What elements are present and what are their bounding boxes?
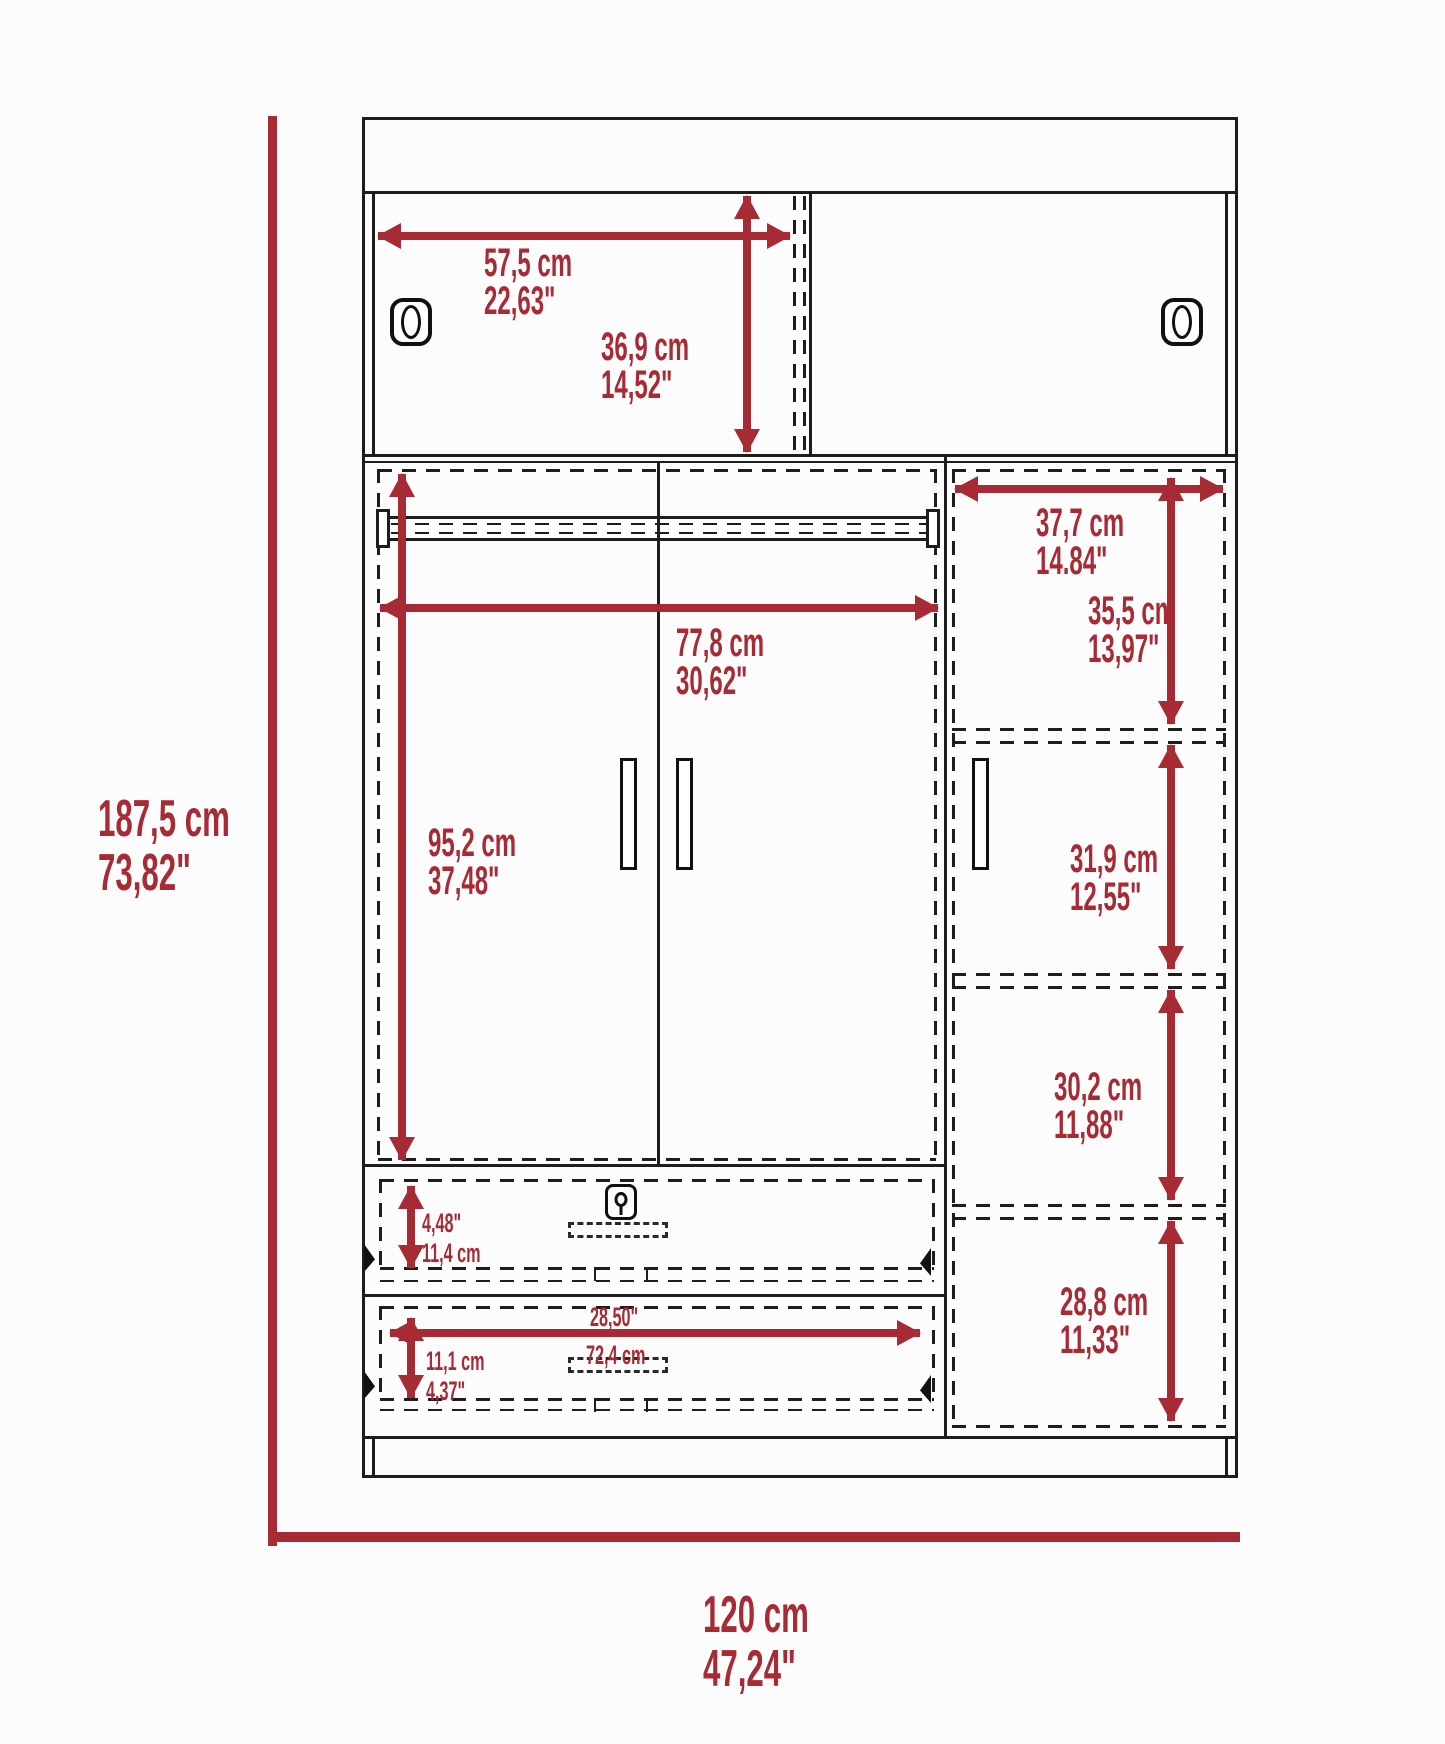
right-column-dashed-bottom <box>952 1425 1226 1428</box>
drawer2-width-arrow <box>390 1329 920 1337</box>
knob-ring <box>1172 305 1192 339</box>
shelf-2-line-a <box>952 973 1226 976</box>
drawer1-height-arrow <box>407 1186 415 1268</box>
overall-height-label: 187,5 cm 73,82" <box>98 792 230 900</box>
drawer2-width-in-label: 28,50" <box>590 1302 638 1332</box>
top-door-width-label: 57,5 cm 22,63" <box>484 244 572 320</box>
top-section-bottom-line-1 <box>362 454 1238 457</box>
overall-height-extension-line <box>268 116 277 1546</box>
wardrobe-width-cm: 77,8 cm <box>676 624 764 662</box>
top-section-inner-right-wall <box>1225 194 1228 457</box>
shelf3-in: 11,88" <box>1054 1106 1142 1144</box>
wardrobe-height-arrow <box>398 474 406 1160</box>
drawer1-dashed-top <box>380 1179 934 1182</box>
knob-ring <box>401 305 421 339</box>
overall-width-label: 120 cm 47,24" <box>703 1588 809 1696</box>
overall-width-cm: 120 cm <box>703 1588 809 1642</box>
shelf3-cm: 30,2 cm <box>1054 1068 1142 1106</box>
sliding-door-edge <box>809 194 812 457</box>
shelf4-in: 11,33" <box>1060 1321 1148 1359</box>
drawer2-dashed-top <box>380 1306 934 1309</box>
drawer2-height-in: 4,37" <box>426 1376 485 1406</box>
drawer1-hidden-handle <box>568 1222 668 1238</box>
shelf2-cm: 31,9 cm <box>1070 840 1158 878</box>
top-door-width-arrow <box>378 232 790 240</box>
armoire-dimension-diagram: 57,5 cm 22,63" 36,9 cm 14,52" 77,8 cm 30… <box>0 0 1445 1744</box>
hanging-rod-right-bracket <box>926 509 940 548</box>
drawer1-height-label: 4,48" 11,4 cm <box>422 1208 481 1268</box>
right-column-dashed-top <box>952 469 1226 472</box>
plinth-inner-left <box>372 1439 375 1475</box>
shelf2-height-arrow <box>1167 745 1175 969</box>
keyhole-stem <box>620 1206 623 1215</box>
right-column-width-in: 14.84" <box>1036 542 1124 580</box>
right-column-dashed-right <box>1223 469 1226 1427</box>
left-door-handle <box>620 758 637 870</box>
top-door-height-in: 14,52" <box>601 366 689 404</box>
shelf1-height-label: 35,5 cm 13,97" <box>1088 592 1176 668</box>
right-column-divider <box>944 456 947 1439</box>
wardrobe-height-cm: 95,2 cm <box>428 824 516 862</box>
plinth-inner-right <box>1225 1439 1228 1475</box>
hanging-rod-left-bracket <box>376 509 390 548</box>
shelf1-in: 13,97" <box>1088 630 1176 668</box>
drawer2-rail-dashed <box>380 1409 934 1411</box>
wardrobe-height-label: 95,2 cm 37,48" <box>428 824 516 900</box>
shelf-3-line-b <box>952 1217 1226 1220</box>
drawer2-rail-tick-left <box>594 1398 596 1412</box>
shelf4-cm: 28,8 cm <box>1060 1283 1148 1321</box>
drawer2-width-cm-label: 72,4 cm <box>586 1340 645 1370</box>
drawer2-height-arrow <box>407 1318 415 1398</box>
wardrobe-width-in: 30,62" <box>676 662 764 700</box>
shelf-1-line-a <box>952 728 1226 731</box>
doors-bottom-line <box>362 1164 947 1167</box>
drawer-divider-line <box>362 1294 947 1297</box>
sliding-door-hidden-edge-2 <box>803 196 806 454</box>
drawer1-dashed-right <box>932 1179 935 1270</box>
shelf2-height-label: 31,9 cm 12,55" <box>1070 840 1158 916</box>
shelf-2-line-b <box>952 986 1226 989</box>
right-column-dashed-left <box>952 469 955 1427</box>
drawer1-height-cm: 11,4 cm <box>422 1238 481 1268</box>
wardrobe-width-arrow <box>380 604 938 612</box>
door-split-line <box>657 461 660 1167</box>
left-sliding-door-knob <box>390 298 432 346</box>
overall-height-in: 73,82" <box>98 846 230 900</box>
right-sliding-door-knob <box>1161 298 1203 346</box>
drawer2-dashed-right <box>932 1306 935 1400</box>
top-door-height-label: 36,9 cm 14,52" <box>601 328 689 404</box>
top-door-height-arrow <box>743 196 751 452</box>
plinth-top-line <box>362 1436 1238 1439</box>
right-door-handle <box>676 758 693 870</box>
shelf-1-line-b <box>952 741 1226 744</box>
drawer1-rail-dashed <box>380 1280 934 1282</box>
wardrobe-height-in: 37,48" <box>428 862 516 900</box>
shelf2-in: 12,55" <box>1070 878 1158 916</box>
drawer2-height-label: 11,1 cm 4,37" <box>426 1346 485 1406</box>
crown-band-line <box>362 191 1238 194</box>
drawer2-width-in: 28,50" <box>590 1302 638 1332</box>
drawer1-rail-tick-left <box>594 1267 596 1281</box>
shelf4-height-arrow <box>1167 1221 1175 1421</box>
top-door-width-cm: 57,5 cm <box>484 244 572 282</box>
shelf3-height-arrow <box>1167 990 1175 1200</box>
top-door-height-cm: 36,9 cm <box>601 328 689 366</box>
drawer1-height-in: 4,48" <box>422 1208 481 1238</box>
shelf1-cm: 35,5 cm <box>1088 592 1176 630</box>
right-compartment-door-handle <box>972 758 989 870</box>
wardrobe-dashed-left <box>377 469 380 1160</box>
top-section-bottom-line-2 <box>362 461 1238 463</box>
right-column-width-cm: 37,7 cm <box>1036 504 1124 542</box>
drawer1-dashed-left <box>379 1179 382 1270</box>
sliding-door-hidden-edge-1 <box>793 196 796 454</box>
shelf-3-line-a <box>952 1204 1226 1207</box>
overall-height-cm: 187,5 cm <box>98 792 230 846</box>
wardrobe-dashed-right <box>934 469 937 1160</box>
drawer2-height-cm: 11,1 cm <box>426 1346 485 1376</box>
top-door-width-in: 22,63" <box>484 282 572 320</box>
drawer1-rail-tick-right <box>646 1267 648 1281</box>
overall-width-extension-line <box>268 1532 1240 1542</box>
drawer2-rail-tick-right <box>646 1398 648 1412</box>
drawer2-dashed-left <box>379 1306 382 1400</box>
drawer-lock-icon <box>605 1184 637 1220</box>
overall-width-in: 47,24" <box>703 1642 809 1696</box>
top-section-inner-left-wall <box>372 194 375 457</box>
right-column-width-label: 37,7 cm 14.84" <box>1036 504 1124 580</box>
keyhole <box>615 1192 628 1207</box>
shelf3-height-label: 30,2 cm 11,88" <box>1054 1068 1142 1144</box>
shelf4-height-label: 28,8 cm 11,33" <box>1060 1283 1148 1359</box>
drawer2-width-cm: 72,4 cm <box>586 1340 645 1370</box>
wardrobe-width-label: 77,8 cm 30,62" <box>676 624 764 700</box>
